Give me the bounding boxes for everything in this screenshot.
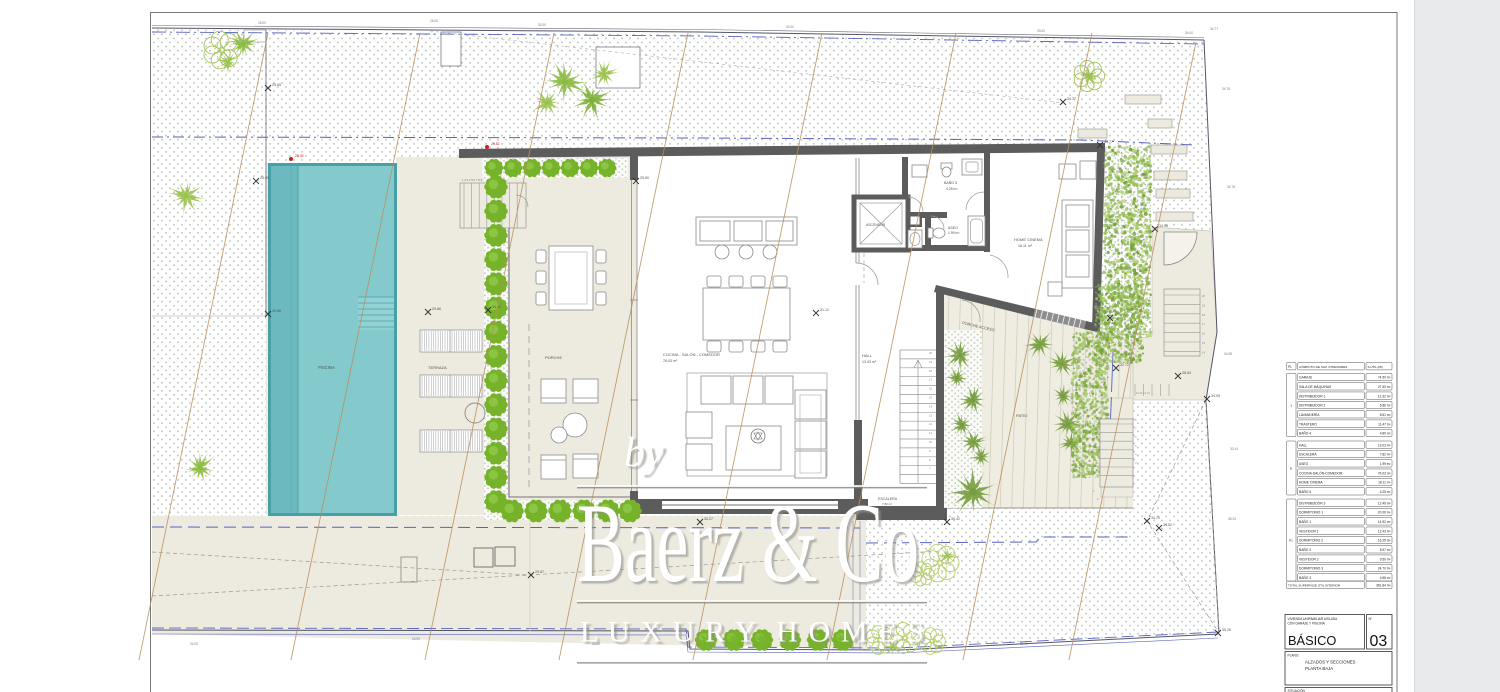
svg-text:1.99 m²: 1.99 m² (1380, 462, 1391, 466)
svg-text:32.00: 32.00 (786, 25, 794, 29)
svg-text:6.97 m²: 6.97 m² (1380, 548, 1391, 552)
svg-text:34.52: 34.52 (1163, 523, 1172, 527)
svg-text:34.98: 34.98 (1224, 352, 1232, 356)
svg-text:13.03 m²: 13.03 m² (1378, 443, 1391, 447)
svg-text:S.ÚTIL (M²): S.ÚTIL (M²) (1368, 364, 1384, 369)
svg-text:29.86: 29.86 (432, 307, 441, 311)
svg-text:12.32 m²: 12.32 m² (1378, 394, 1391, 398)
svg-text:34.52: 34.52 (492, 305, 501, 309)
svg-text:ESCALERA: ESCALERA (1299, 453, 1317, 457)
svg-text:15: 15 (1202, 341, 1206, 345)
svg-text:34.77: 34.77 (1104, 140, 1113, 144)
svg-text:34.00: 34.00 (1185, 31, 1193, 35)
svg-text:31.12: 31.12 (820, 308, 829, 312)
svg-text:HALL: HALL (1299, 443, 1307, 447)
svg-text:35.26: 35.26 (1222, 628, 1231, 632)
svg-text:1.99 m²: 1.99 m² (948, 231, 960, 235)
svg-text:18: 18 (929, 369, 933, 373)
svg-text:76.03 m²: 76.03 m² (1378, 471, 1391, 475)
svg-text:5.86 m²: 5.86 m² (1380, 404, 1391, 408)
svg-text:by: by (624, 430, 664, 476)
svg-text:14.92 m²: 14.92 m² (1378, 520, 1391, 524)
svg-text:29.86: 29.86 (272, 309, 281, 313)
svg-text:14: 14 (929, 404, 933, 408)
svg-text:9.50 m²: 9.50 m² (1380, 557, 1391, 561)
svg-text:PORCHE: PORCHE (545, 355, 562, 360)
svg-text:19: 19 (929, 360, 933, 364)
svg-text:30.00: 30.00 (1020, 642, 1028, 646)
svg-text:13.03 m²: 13.03 m² (862, 360, 877, 364)
svg-text:34.77: 34.77 (1067, 97, 1076, 101)
svg-text:BAÑO 1: BAÑO 1 (1299, 519, 1311, 524)
svg-text:14: 14 (1202, 350, 1206, 354)
svg-text:VESTIDOR 2: VESTIDOR 2 (1299, 557, 1319, 561)
svg-text:25.65: 25.65 (260, 176, 269, 180)
svg-text:34.78: 34.78 (1222, 87, 1230, 91)
svg-text:HALL: HALL (862, 353, 873, 358)
svg-text:BÁSICO: BÁSICO (1288, 633, 1336, 648)
svg-text:-1: -1 (1290, 404, 1293, 408)
svg-text:L U X U R Y H O M E S: L U X U R Y H O M E S (580, 616, 924, 649)
svg-text:30.42: 30.42 (951, 517, 960, 521)
svg-text:COCINA - SALÓN - COMEDOR: COCINA - SALÓN - COMEDOR (663, 352, 720, 357)
svg-text:LAVANDERÍA: LAVANDERÍA (1299, 413, 1320, 417)
svg-text:11.47 m²: 11.47 m² (1378, 422, 1390, 426)
svg-text:12: 12 (929, 422, 933, 426)
svg-text:25.00: 25.00 (258, 21, 266, 25)
svg-text:BAÑO 5: BAÑO 5 (944, 180, 957, 185)
svg-text:PL: PL (1288, 365, 1292, 369)
svg-text:SALA DE MÁQUINAS: SALA DE MÁQUINAS (1299, 385, 1332, 389)
svg-text:BAÑO 4: BAÑO 4 (1299, 431, 1311, 436)
svg-text:34.70: 34.70 (1151, 516, 1160, 520)
svg-text:33.00: 33.00 (1037, 29, 1045, 33)
svg-text:25.00: 25.00 (430, 19, 438, 23)
svg-text:361.84 m²: 361.84 m² (1376, 584, 1390, 588)
svg-text:4.58 m²: 4.58 m² (1380, 576, 1391, 580)
svg-text:34.78: 34.78 (1227, 185, 1235, 189)
svg-text:4.89 m²: 4.89 m² (1380, 432, 1391, 436)
svg-text:38.84: 38.84 (1182, 371, 1191, 375)
svg-text:VIVIENDA UNIFAMILIAR AISLADA: VIVIENDA UNIFAMILIAR AISLADA (1288, 617, 1339, 621)
svg-text:16: 16 (1202, 332, 1206, 336)
svg-text:DORMITORIO 2: DORMITORIO 2 (1299, 539, 1323, 543)
svg-text:DORMITORIO 3: DORMITORIO 3 (1299, 567, 1323, 571)
svg-text:BAÑO 2: BAÑO 2 (1299, 547, 1311, 552)
svg-text:16: 16 (929, 387, 933, 391)
svg-text:GARAJE: GARAJE (1299, 376, 1313, 380)
svg-text:SITUACIÓN: SITUACIÓN (1288, 688, 1306, 692)
svg-text:29.82: 29.82 (491, 142, 500, 146)
svg-text:17: 17 (1202, 322, 1206, 326)
svg-text:74.50 m²: 74.50 m² (1378, 376, 1391, 380)
svg-text:13: 13 (929, 413, 933, 417)
svg-text:COCINA-SALÓN-COMEDOR: COCINA-SALÓN-COMEDOR (1299, 470, 1343, 475)
svg-text:35.26: 35.26 (1228, 517, 1236, 521)
svg-text:HOME CINEMA: HOME CINEMA (1014, 237, 1043, 242)
svg-text:34.77: 34.77 (1210, 27, 1218, 31)
svg-text:26.35: 26.35 (295, 154, 304, 158)
svg-text:TERRAZA: TERRAZA (428, 365, 447, 370)
svg-text:32.00: 32.00 (538, 23, 546, 27)
svg-text:ASEO: ASEO (1299, 462, 1309, 466)
svg-text:ALZADOS Y SECCIONES: ALZADOS Y SECCIONES (1305, 660, 1356, 665)
svg-text:34.95: 34.95 (1211, 394, 1220, 398)
svg-text:PLANTA BAJA: PLANTA BAJA (1305, 666, 1333, 671)
svg-text:32.72: 32.72 (1120, 363, 1129, 367)
svg-text:BAÑO 5: BAÑO 5 (1299, 489, 1311, 494)
svg-text:12.43 m²: 12.43 m² (1378, 529, 1391, 533)
svg-text:17: 17 (929, 378, 933, 382)
svg-text:TOTAL SUPERFICIE ÚTIL INTERIOR: TOTAL SUPERFICIE ÚTIL INTERIOR (1288, 584, 1341, 588)
svg-text:PLANO:: PLANO: (1288, 654, 1300, 658)
svg-text:20.06 m²: 20.06 m² (1378, 511, 1391, 515)
svg-text:29.87: 29.87 (535, 570, 544, 574)
svg-text:CÓMPUTO DE SUP. INTERIORES: CÓMPUTO DE SUP. INTERIORES (1299, 364, 1347, 369)
svg-text:11: 11 (929, 431, 932, 435)
svg-text:12.49 m²: 12.49 m² (1378, 501, 1391, 505)
svg-text:18.11 m²: 18.11 m² (1018, 244, 1033, 248)
svg-text:27.50 m²: 27.50 m² (1378, 385, 1391, 389)
svg-text:PATIO: PATIO (1016, 413, 1027, 418)
svg-text:7.82 m²: 7.82 m² (1380, 453, 1391, 457)
svg-text:TRASTERO: TRASTERO (1299, 422, 1317, 426)
svg-text:P1: P1 (1289, 539, 1293, 543)
svg-text:10 11 12 13: 10 11 12 13 (1136, 391, 1150, 395)
svg-text:37.97: 37.97 (1114, 313, 1123, 317)
svg-text:CON GARAJE Y PISCINA: CON GARAJE Y PISCINA (1288, 622, 1326, 626)
svg-text:76.03 m²: 76.03 m² (663, 359, 678, 363)
svg-text:18: 18 (1202, 313, 1206, 317)
svg-text:ASEO: ASEO (948, 226, 958, 230)
svg-text:BAÑO 3: BAÑO 3 (1299, 575, 1311, 580)
svg-text:24.90: 24.90 (412, 637, 420, 641)
svg-text:30.14: 30.14 (1230, 447, 1238, 451)
svg-text:20: 20 (1202, 294, 1206, 298)
svg-text:ASCENSOR: ASCENSOR (866, 223, 886, 227)
svg-text:DISTRIBUIDOR 1: DISTRIBUIDOR 1 (1299, 394, 1326, 398)
svg-text:DISTRIBUIDOR 3: DISTRIBUIDOR 3 (1299, 501, 1326, 505)
svg-text:VESTIDOR 1: VESTIDOR 1 (1299, 529, 1319, 533)
svg-text:34.98: 34.98 (1159, 224, 1168, 228)
svg-text:20: 20 (929, 351, 933, 355)
svg-text:DORMITORIO 1: DORMITORIO 1 (1299, 511, 1323, 515)
svg-text:4.25 m²: 4.25 m² (946, 187, 958, 191)
svg-text:15: 15 (929, 396, 933, 400)
svg-text:19: 19 (1202, 303, 1206, 307)
svg-text:25.60: 25.60 (640, 176, 649, 180)
svg-text:25.65: 25.65 (272, 83, 281, 87)
svg-text:4.25 m²: 4.25 m² (1380, 490, 1391, 494)
svg-text:10: 10 (929, 440, 933, 444)
svg-text:Baerz & Co: Baerz & Co (577, 482, 919, 607)
svg-text:HOME CINEMA: HOME CINEMA (1299, 481, 1323, 485)
svg-text:PISCINA: PISCINA (318, 365, 335, 370)
svg-text:18.11 m²: 18.11 m² (1378, 481, 1390, 485)
svg-text:16.25 m²: 16.25 m² (1378, 539, 1391, 543)
svg-text:24.00: 24.00 (190, 642, 198, 646)
svg-text:24.70 m²: 24.70 m² (1378, 567, 1391, 571)
svg-text:1 2 3 4 5 6 7 8 9: 1 2 3 4 5 6 7 8 9 (462, 178, 483, 182)
svg-text:03: 03 (1370, 633, 1388, 650)
svg-text:8.51 m²: 8.51 m² (1380, 413, 1391, 417)
svg-text:B: B (1290, 467, 1292, 471)
svg-text:DISTRIBUIDOR 2: DISTRIBUIDOR 2 (1299, 404, 1326, 408)
